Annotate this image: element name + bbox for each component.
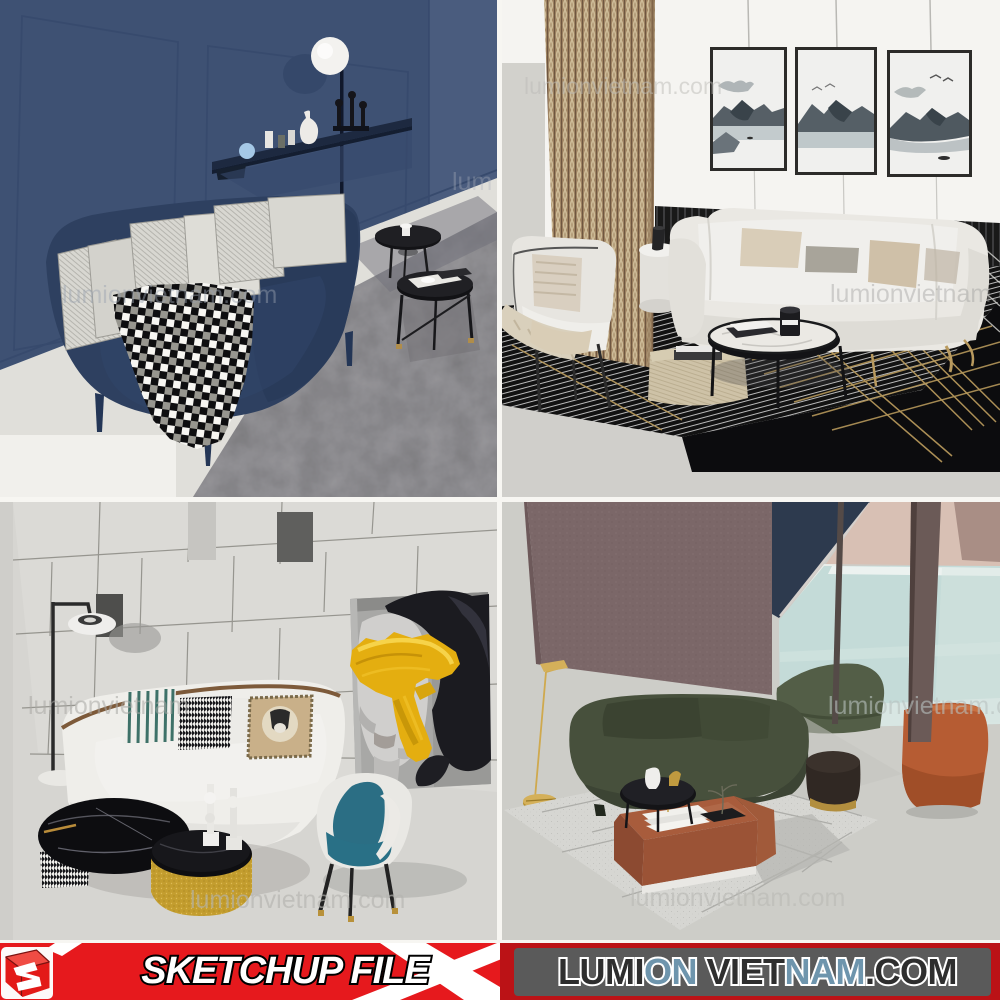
svg-text:lumionvietnam.com: lumionvietnam.com [830, 280, 1000, 308]
svg-text:lumionvietnam.com: lumionvietnam.com [524, 73, 722, 99]
svg-text:lumionvietnam.com: lumionvietnam.com [828, 692, 1000, 720]
svg-text:lumionvietnam: lumionvietnam [28, 692, 189, 720]
svg-text:lumionvietnam.com: lumionvietnam.com [62, 281, 277, 309]
svg-text:lum: lum [452, 168, 492, 196]
svg-text:lumionvietnam.com: lumionvietnam.com [630, 884, 845, 912]
svg-text:lumionvietnam.com: lumionvietnam.com [190, 886, 405, 914]
